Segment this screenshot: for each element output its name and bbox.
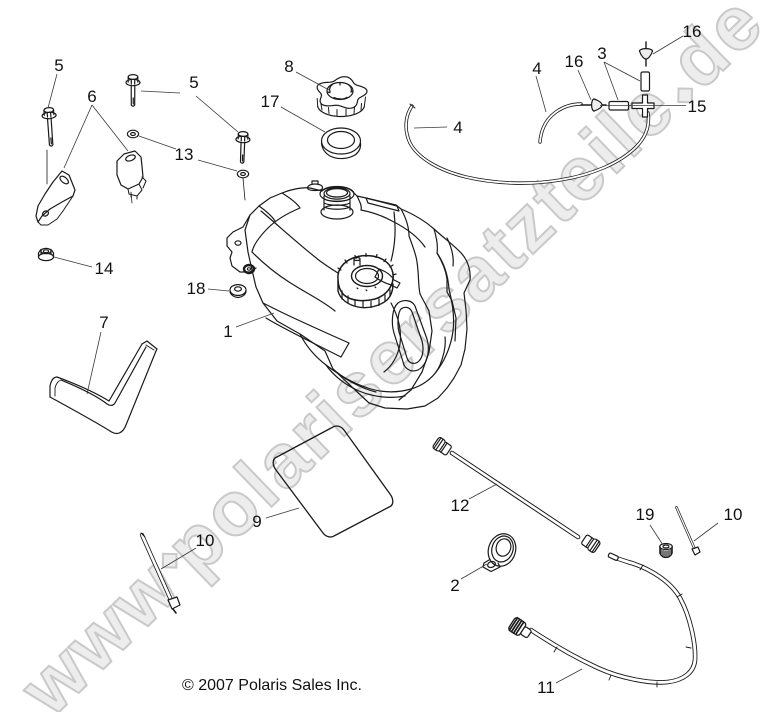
svg-text:1: 1 — [223, 322, 232, 341]
svg-text:16: 16 — [683, 22, 702, 41]
svg-text:3: 3 — [597, 44, 606, 63]
svg-text:12: 12 — [451, 496, 470, 515]
svg-text:5: 5 — [54, 56, 63, 75]
svg-text:9: 9 — [252, 512, 261, 531]
svg-text:10: 10 — [724, 505, 743, 524]
svg-text:17: 17 — [261, 92, 280, 111]
svg-text:2: 2 — [450, 576, 459, 595]
svg-text:14: 14 — [95, 259, 114, 278]
svg-text:13: 13 — [175, 145, 194, 164]
svg-text:16: 16 — [565, 52, 584, 71]
svg-text:11: 11 — [537, 678, 555, 697]
svg-text:7: 7 — [99, 313, 108, 332]
svg-text:4: 4 — [532, 59, 541, 78]
svg-text:18: 18 — [187, 279, 206, 298]
svg-text:6: 6 — [87, 87, 96, 106]
svg-text:4: 4 — [453, 118, 462, 137]
svg-text:19: 19 — [636, 505, 655, 524]
svg-text:15: 15 — [688, 97, 707, 116]
svg-text:10: 10 — [196, 531, 215, 550]
svg-text:5: 5 — [189, 73, 198, 92]
svg-text:© 2007 Polaris Sales Inc.: © 2007 Polaris Sales Inc. — [182, 677, 362, 694]
svg-text:8: 8 — [284, 57, 293, 76]
